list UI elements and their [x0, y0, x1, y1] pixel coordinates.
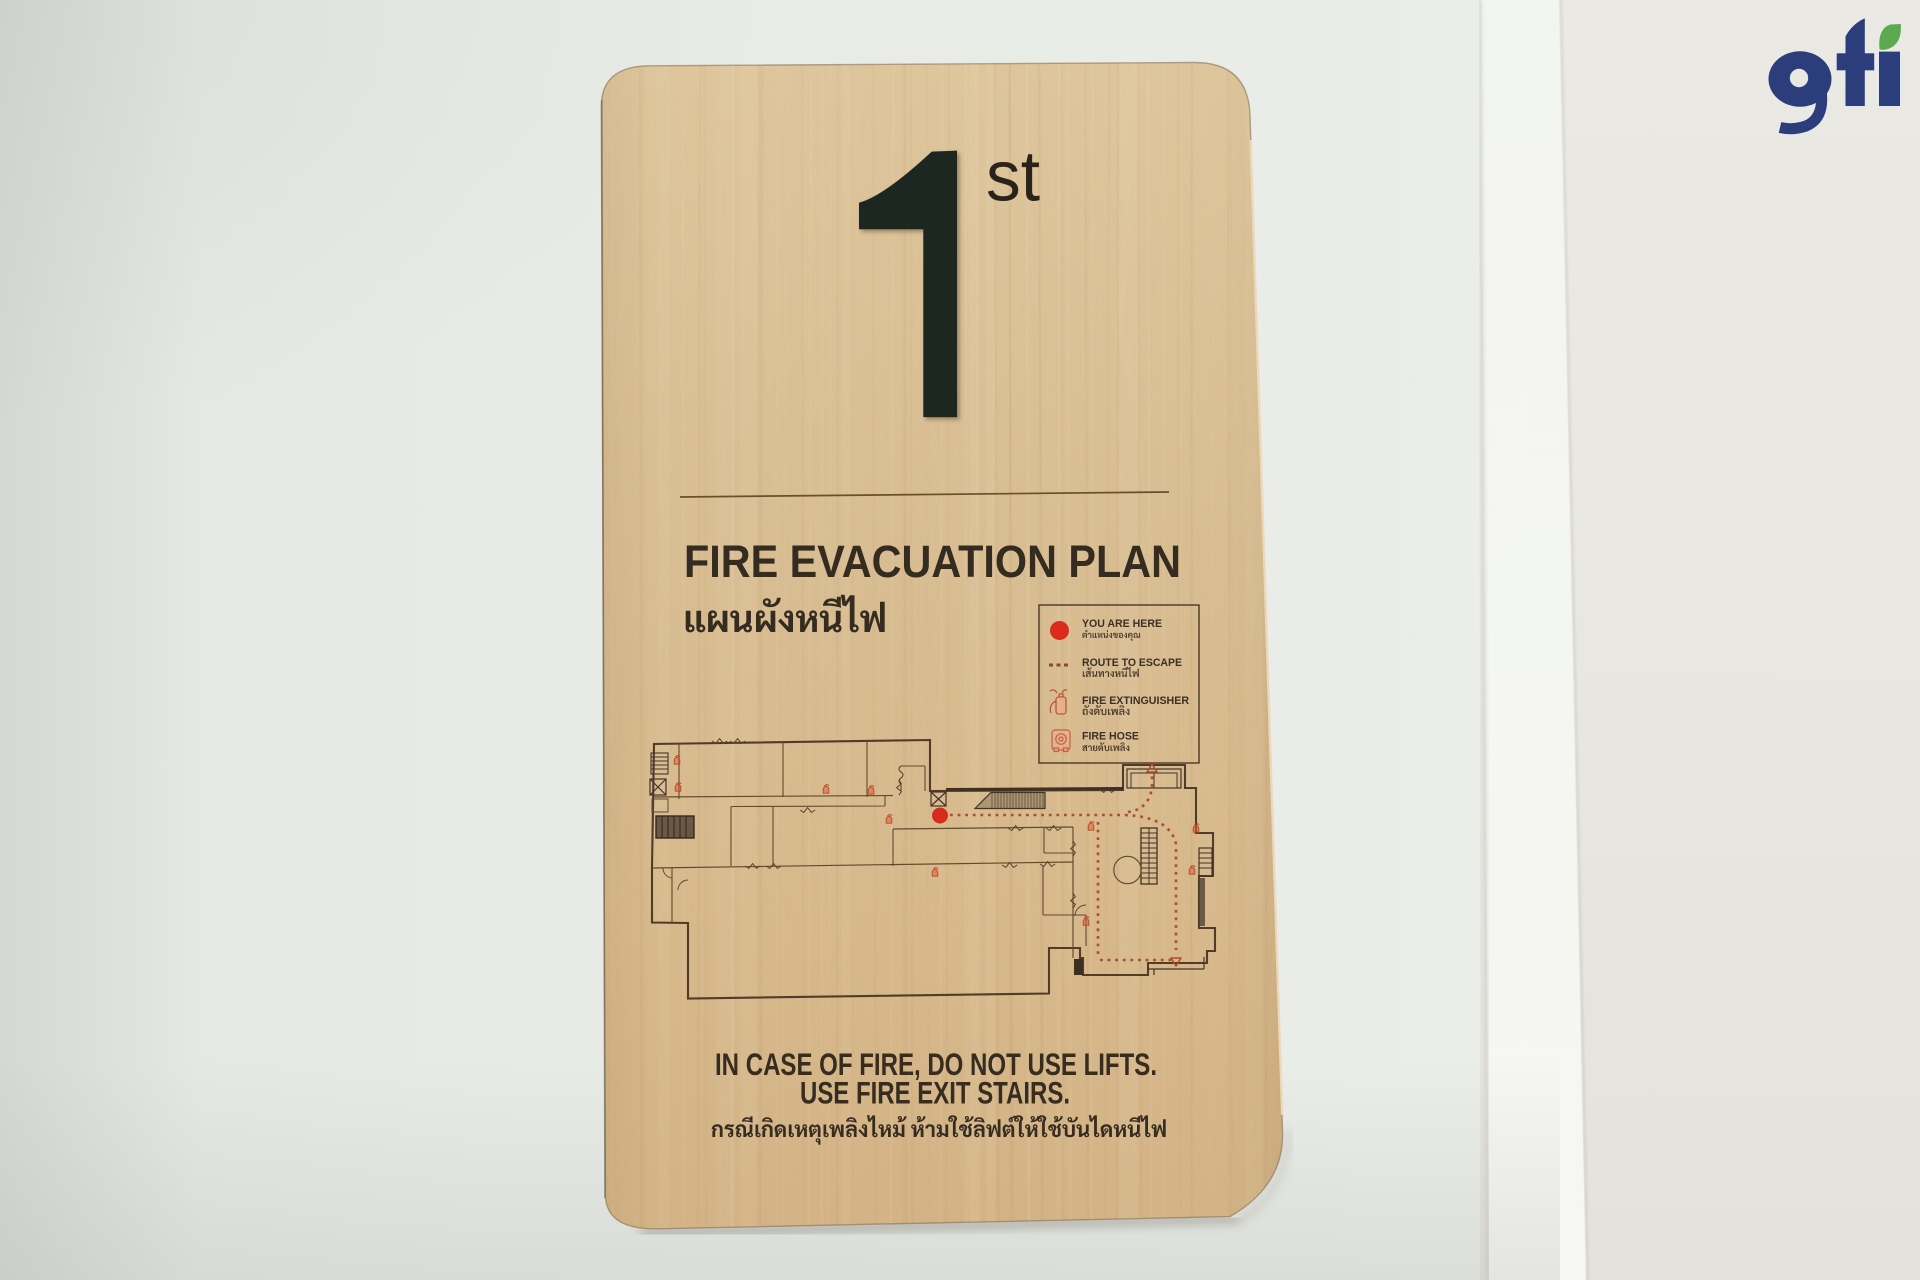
svg-text:FIRE EXTINGUISHER: FIRE EXTINGUISHER — [1082, 695, 1189, 707]
svg-text:YOU ARE HERE: YOU ARE HERE — [1082, 618, 1162, 630]
svg-text:FIRE EVACUATION PLAN: FIRE EVACUATION PLAN — [684, 536, 1181, 587]
svg-text:ROUTE TO ESCAPE: ROUTE TO ESCAPE — [1082, 657, 1182, 669]
svg-text:st: st — [986, 138, 1040, 217]
svg-text:USE FIRE EXIT STAIRS.: USE FIRE EXIT STAIRS. — [800, 1075, 1070, 1111]
svg-text:FIRE HOSE: FIRE HOSE — [1082, 731, 1139, 743]
